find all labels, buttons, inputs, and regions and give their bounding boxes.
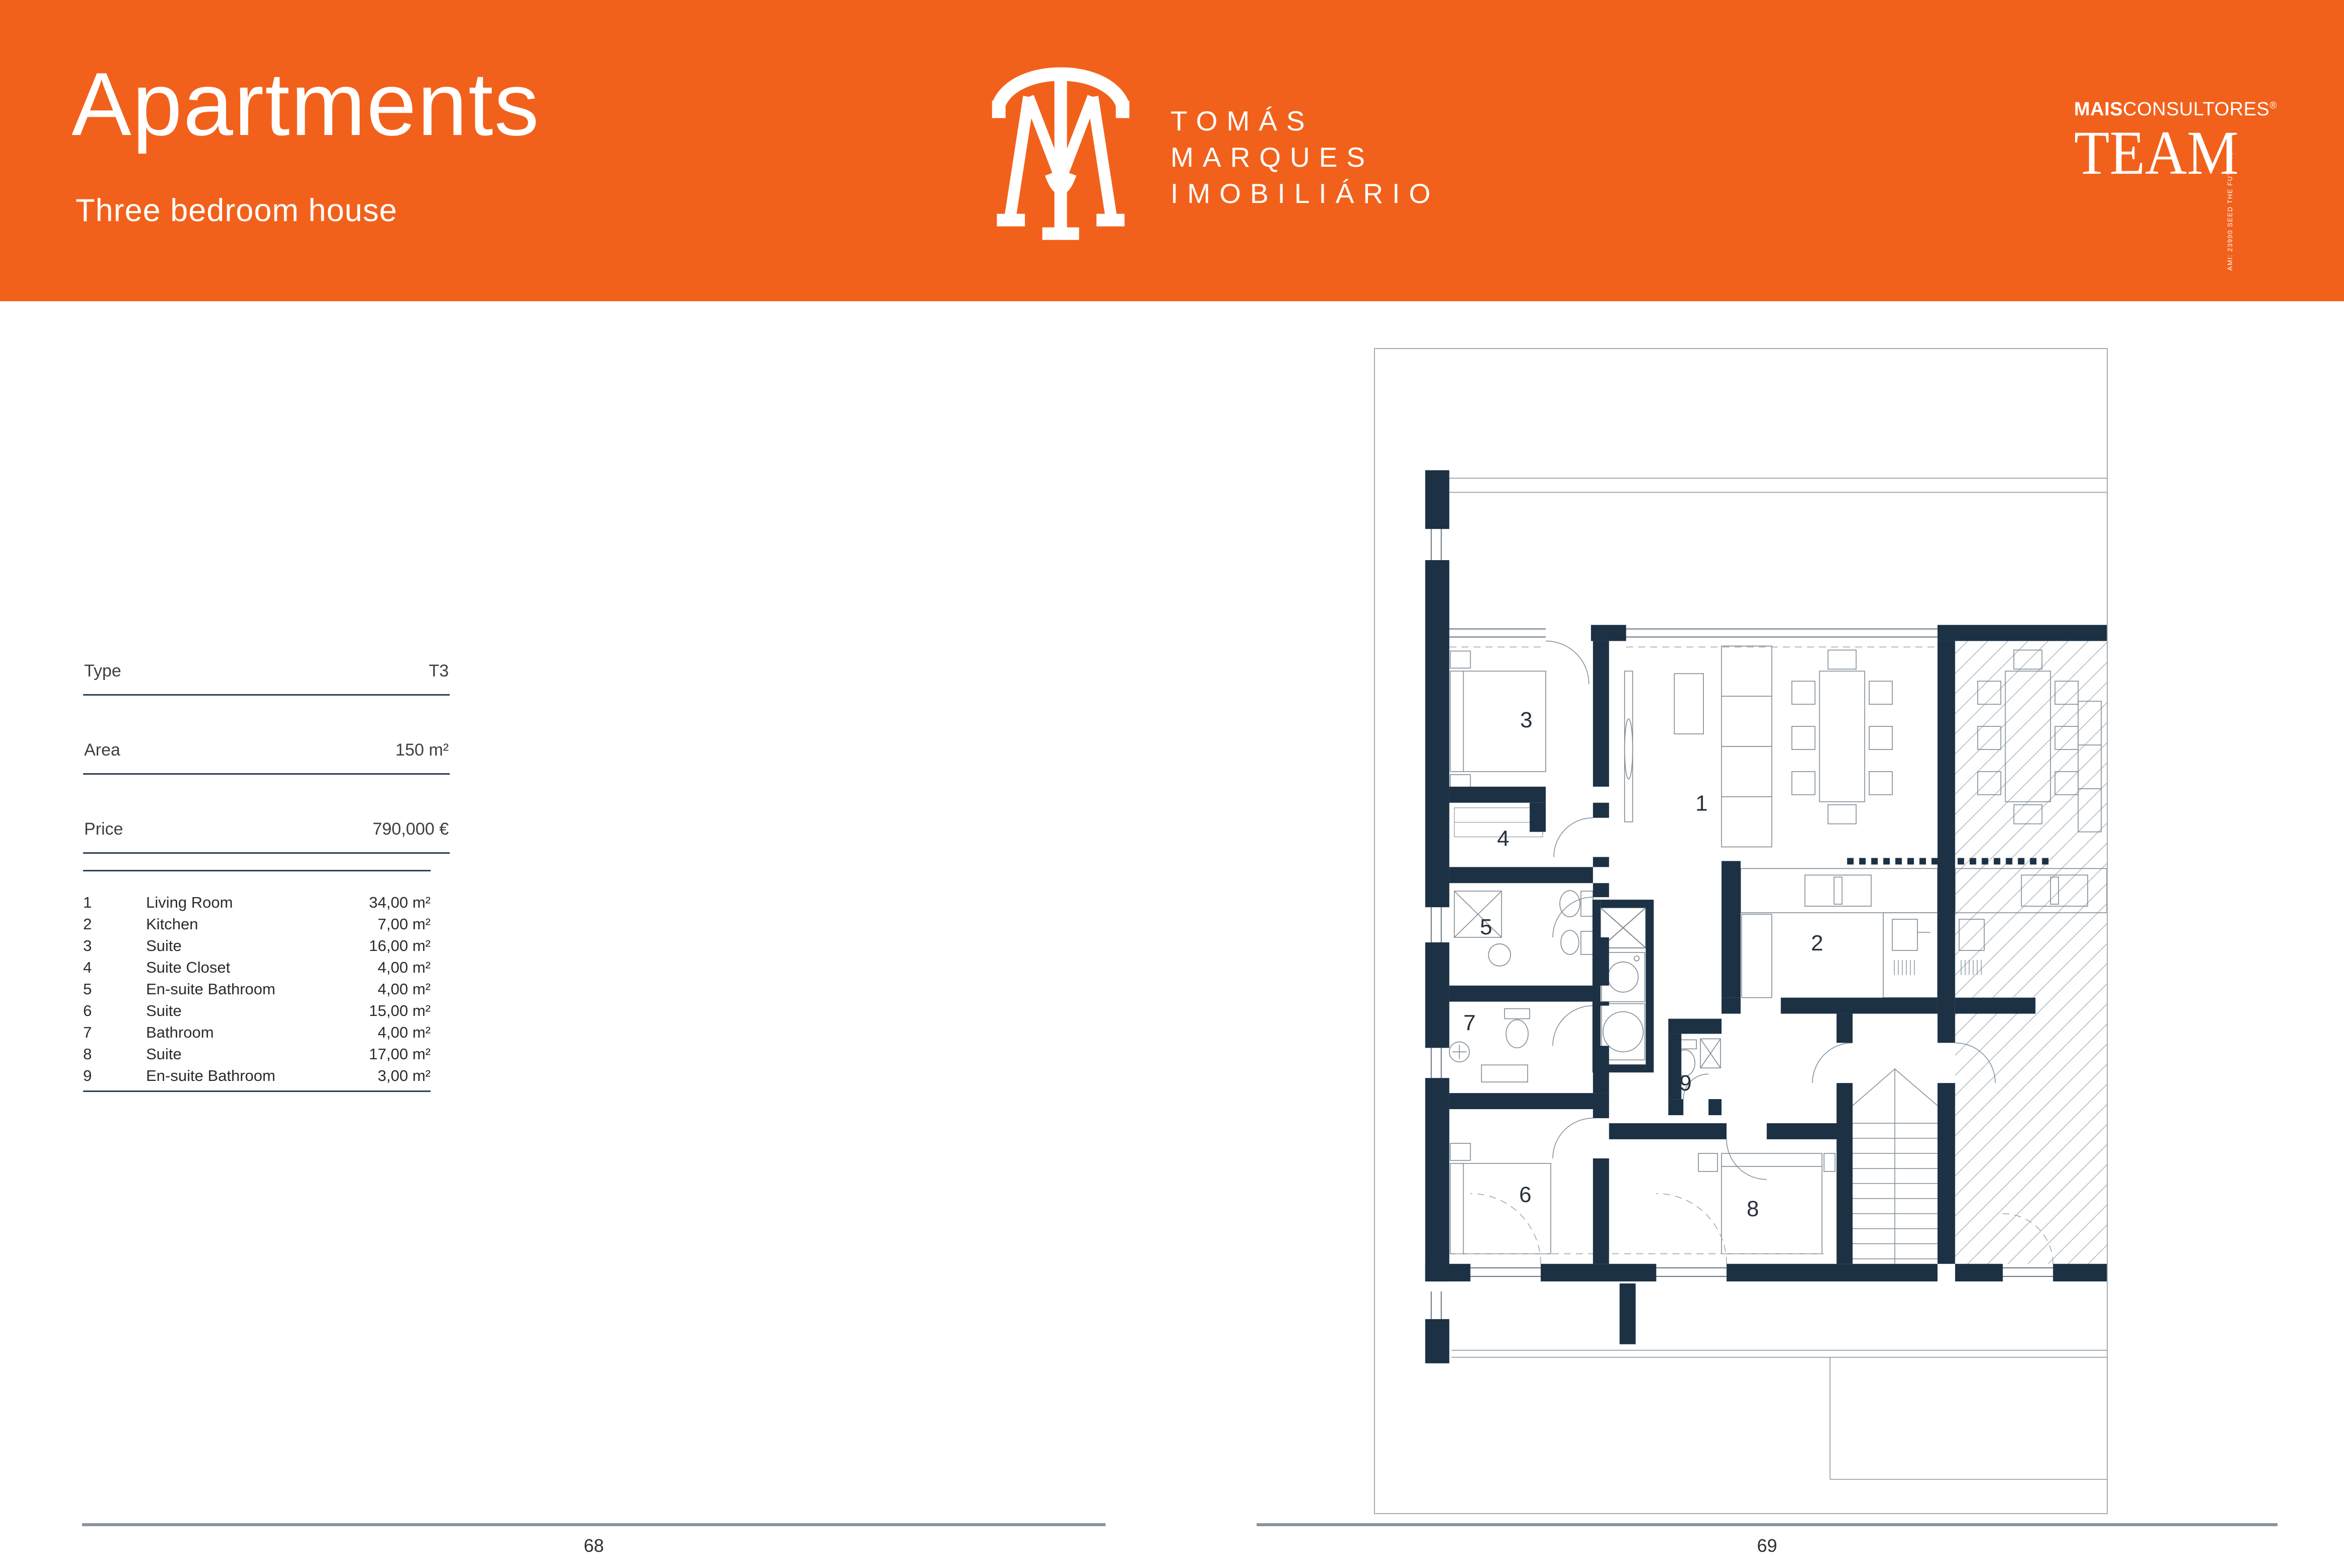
room-row-9: 9 En-suite Bathroom 3,00 m² xyxy=(83,1065,431,1086)
room-row-5: 5 En-suite Bathroom 4,00 m² xyxy=(83,978,431,1000)
detail-value: 790,000 € xyxy=(373,820,449,839)
staircase xyxy=(1852,1069,1938,1264)
detail-label: Price xyxy=(84,820,123,839)
brand-logo: TOMÁS MARQUES IMOBILIÁRIO xyxy=(988,46,1542,258)
room-number: 1 xyxy=(83,894,146,912)
room-number: 9 xyxy=(83,1067,146,1085)
room-number: 4 xyxy=(83,959,146,977)
room-area: 17,00 m² xyxy=(335,1045,431,1063)
room-name: Suite Closet xyxy=(146,959,335,977)
partner-side-text: AMI: 23990 SEED THE FUTURE, LDA. xyxy=(2226,132,2234,270)
room-area: 4,00 m² xyxy=(335,1024,431,1042)
room-row-6: 6 Suite 15,00 m² xyxy=(83,1000,431,1021)
brand-name-line1: TOMÁS xyxy=(1170,103,1439,139)
bed-room8 xyxy=(1698,1153,1835,1254)
room-number: 2 xyxy=(83,915,146,933)
footer-divider-right xyxy=(1257,1523,2278,1526)
detail-value: 150 m² xyxy=(395,740,449,760)
unit-details-table: Type T3 Area 150 m² Price 790,000 € xyxy=(83,617,450,854)
room-area: 7,00 m² xyxy=(335,915,431,933)
detail-label: Area xyxy=(84,740,120,760)
detail-row-price: Price 790,000 € xyxy=(83,775,450,854)
room-area: 34,00 m² xyxy=(335,894,431,912)
plan-label-8: 8 xyxy=(1747,1196,1759,1221)
brand-name: TOMÁS MARQUES IMOBILIÁRIO xyxy=(1170,103,1439,212)
plan-label-5: 5 xyxy=(1480,915,1492,939)
tm-monogram-icon xyxy=(988,46,1133,248)
room-row-3: 3 Suite 16,00 m² xyxy=(83,935,431,957)
plan-label-2: 2 xyxy=(1811,931,1823,956)
room-number: 8 xyxy=(83,1045,146,1063)
room-area: 4,00 m² xyxy=(335,959,431,977)
room-name: En-suite Bathroom xyxy=(146,980,335,998)
room-number: 6 xyxy=(83,1002,146,1020)
room-row-1: 1 Living Room 34,00 m² xyxy=(83,892,431,913)
plan-label-6: 6 xyxy=(1519,1183,1531,1207)
page-subtitle: Three bedroom house xyxy=(76,192,397,229)
floor-plan-drawing: 1 2 3 4 5 6 7 8 9 xyxy=(1375,349,2107,1513)
room-area-list: 1 Living Room 34,00 m² 2 Kitchen 7,00 m²… xyxy=(83,870,431,1092)
room-name: Suite xyxy=(146,1002,335,1020)
room-name: Suite xyxy=(146,937,335,955)
plan-label-3: 3 xyxy=(1520,708,1532,732)
room-number: 7 xyxy=(83,1024,146,1042)
detail-value: T3 xyxy=(429,661,449,681)
room-area: 15,00 m² xyxy=(335,1002,431,1020)
room-name: Living Room xyxy=(146,894,335,912)
room-name: Kitchen xyxy=(146,915,335,933)
plan-label-1: 1 xyxy=(1695,791,1707,816)
partner-bold-text: MAIS xyxy=(2074,99,2123,120)
plan-label-7: 7 xyxy=(1464,1010,1476,1035)
detail-row-type: Type T3 xyxy=(83,617,450,696)
room-area: 4,00 m² xyxy=(335,980,431,998)
kitchen-furniture xyxy=(1741,868,1938,997)
bathroom5-fixtures xyxy=(1455,891,1593,966)
registered-mark-icon: ® xyxy=(2269,100,2277,111)
partner-logo: MAISCONSULTORES® TEAM AMI: 23990 SEED TH… xyxy=(2074,99,2276,186)
room-number: 5 xyxy=(83,980,146,998)
room-row-4: 4 Suite Closet 4,00 m² xyxy=(83,957,431,978)
plan-label-9: 9 xyxy=(1679,1071,1691,1096)
room-name: En-suite Bathroom xyxy=(146,1067,335,1085)
detail-label: Type xyxy=(84,661,121,681)
room-row-8: 8 Suite 17,00 m² xyxy=(83,1043,431,1065)
floor-plan: 1 2 3 4 5 6 7 8 9 xyxy=(1374,348,2108,1514)
room-row-7: 7 Bathroom 4,00 m² xyxy=(83,1021,431,1043)
partner-rest-text: CONSULTORES xyxy=(2123,99,2269,120)
page-title: Apartments xyxy=(72,59,540,149)
room-name: Suite xyxy=(146,1045,335,1063)
room-number: 3 xyxy=(83,937,146,955)
footer-divider-left xyxy=(82,1523,1106,1526)
page-number-right: 69 xyxy=(1257,1535,2278,1556)
bathroom7-fixtures xyxy=(1450,1009,1530,1082)
room-area: 16,00 m² xyxy=(335,937,431,955)
detail-row-area: Area 150 m² xyxy=(83,696,450,775)
living-room-furniture xyxy=(1625,646,1893,847)
room-row-2: 2 Kitchen 7,00 m² xyxy=(83,913,431,935)
page-number-left: 68 xyxy=(82,1535,1106,1556)
room-area: 3,00 m² xyxy=(335,1067,431,1085)
header-band: Apartments Three bedroom house TOMÁS xyxy=(0,0,2344,301)
brand-name-line2: MARQUES xyxy=(1170,139,1439,175)
partner-logo-topline: MAISCONSULTORES® xyxy=(2074,99,2276,120)
brand-name-line3: IMOBILIÁRIO xyxy=(1170,175,1439,212)
room-name: Bathroom xyxy=(146,1024,335,1042)
plan-label-4: 4 xyxy=(1497,826,1509,851)
